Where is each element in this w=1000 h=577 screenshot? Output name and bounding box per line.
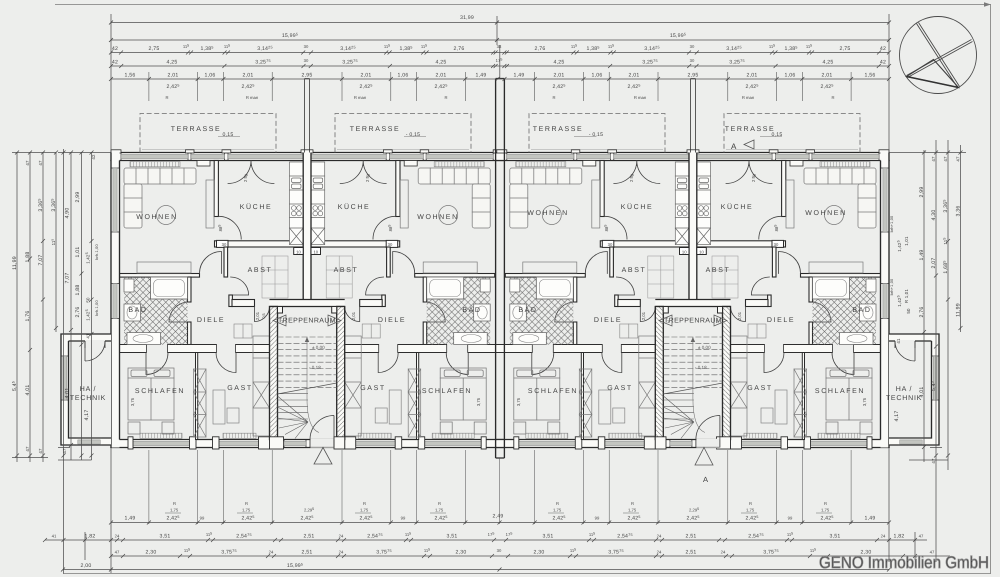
svg-text:11,99: 11,99 — [956, 303, 962, 317]
svg-text:1,75: 1,75 — [553, 508, 562, 513]
svg-text:1,75: 1,75 — [821, 508, 830, 513]
svg-text:3,51: 3,51 — [160, 534, 171, 540]
svg-text:SCHLAFEN: SCHLAFEN — [815, 388, 865, 395]
svg-text:DIELE: DIELE — [197, 317, 225, 324]
svg-text:10: 10 — [682, 249, 687, 254]
svg-text:1,49: 1,49 — [514, 73, 525, 79]
svg-text:31,99: 31,99 — [460, 15, 474, 21]
svg-text:3,36: 3,36 — [956, 206, 962, 217]
svg-text:2,07: 2,07 — [931, 258, 937, 269]
svg-text:DIELE: DIELE — [767, 317, 795, 324]
svg-text:24: 24 — [657, 534, 662, 539]
svg-text:24: 24 — [115, 534, 120, 539]
svg-text:2,01: 2,01 — [351, 311, 356, 320]
svg-text:2,49: 2,49 — [493, 514, 504, 520]
svg-text:GAST: GAST — [227, 385, 252, 392]
svg-text:1,56: 1,56 — [865, 73, 876, 79]
svg-text:GENO Immobilien GmbH: GENO Immobilien GmbH — [819, 553, 989, 572]
svg-text:47: 47 — [931, 458, 936, 464]
svg-text:1,06: 1,06 — [205, 73, 216, 79]
svg-text:4,25: 4,25 — [167, 60, 178, 66]
svg-text:15,995: 15,995 — [287, 562, 303, 569]
svg-text:30: 30 — [304, 58, 309, 63]
svg-text:KÜCHE: KÜCHE — [621, 203, 654, 211]
svg-text:24: 24 — [721, 550, 726, 555]
svg-text:2,01: 2,01 — [629, 73, 640, 79]
svg-text:24: 24 — [269, 550, 274, 555]
svg-text:2,95: 2,95 — [688, 73, 699, 79]
svg-text:2,75: 2,75 — [840, 46, 851, 52]
svg-text:BAD: BAD — [518, 307, 537, 314]
svg-text:BAD: BAD — [462, 307, 481, 314]
svg-text:brh+1,00: brh+1,00 — [890, 216, 894, 233]
svg-text:2,95: 2,95 — [302, 73, 313, 79]
svg-text:1,82: 1,82 — [894, 534, 905, 540]
svg-text:R: R — [556, 501, 559, 506]
svg-text:1,75: 1,75 — [746, 508, 755, 513]
svg-text:47: 47 — [931, 156, 936, 162]
svg-text:R: R — [749, 501, 752, 506]
svg-text:42: 42 — [91, 154, 96, 160]
svg-text:- 0,15: - 0,15 — [589, 132, 603, 138]
svg-text:41: 41 — [896, 338, 901, 344]
svg-text:2,01: 2,01 — [641, 311, 646, 320]
svg-text:R man: R man — [634, 95, 647, 100]
svg-text:1,49: 1,49 — [919, 250, 925, 261]
svg-text:99: 99 — [401, 516, 406, 521]
svg-text:KÜCHE: KÜCHE — [338, 203, 371, 211]
svg-text:2,01: 2,01 — [168, 73, 179, 79]
svg-text:2,01: 2,01 — [822, 73, 833, 79]
svg-text:2,76: 2,76 — [75, 307, 81, 318]
svg-text:47: 47 — [62, 448, 67, 454]
svg-text:1,76: 1,76 — [25, 311, 31, 322]
svg-text:1,06: 1,06 — [785, 73, 796, 79]
svg-text:24: 24 — [881, 534, 886, 539]
svg-text:R: R — [831, 95, 834, 100]
svg-text:10: 10 — [699, 249, 704, 254]
svg-text:2,76: 2,76 — [919, 307, 925, 318]
svg-text:30: 30 — [222, 242, 227, 247]
svg-text:0,15: 0,15 — [223, 132, 234, 138]
svg-text:BAD: BAD — [852, 307, 871, 314]
svg-text:3,51: 3,51 — [830, 534, 841, 540]
svg-text:R: R — [245, 501, 248, 506]
svg-text:4,25: 4,25 — [823, 60, 834, 66]
svg-text:2,75: 2,75 — [149, 46, 160, 52]
svg-text:TERRASSE: TERRASSE — [533, 126, 584, 133]
svg-text:TERRASSE: TERRASSE — [350, 126, 401, 133]
svg-text:2,51: 2,51 — [304, 534, 315, 540]
svg-text:WOHNEN: WOHNEN — [805, 210, 847, 217]
svg-text:HA /: HA / — [80, 385, 96, 393]
svg-text:R man: R man — [742, 95, 755, 100]
svg-text:99: 99 — [200, 516, 205, 521]
svg-text:GAST: GAST — [607, 385, 632, 392]
svg-text:47: 47 — [956, 156, 961, 162]
svg-text:30: 30 — [690, 44, 695, 49]
svg-text:3,75: 3,75 — [130, 397, 135, 406]
svg-text:2,01: 2,01 — [737, 311, 742, 320]
svg-text:1,01: 1,01 — [75, 247, 81, 258]
svg-text:BAD: BAD — [128, 307, 147, 314]
svg-text:4,17: 4,17 — [84, 410, 90, 421]
svg-text:1,06: 1,06 — [398, 73, 409, 79]
svg-text:1,01: 1,01 — [904, 236, 909, 246]
svg-text:2,01: 2,01 — [747, 73, 758, 79]
svg-text:R: R — [363, 501, 366, 506]
svg-text:30: 30 — [497, 548, 502, 553]
svg-text:47: 47 — [38, 448, 43, 454]
svg-text:47: 47 — [25, 446, 30, 452]
svg-text:42: 42 — [880, 46, 886, 52]
svg-text:50: 50 — [86, 297, 91, 303]
svg-text:47: 47 — [115, 550, 120, 555]
svg-text:24: 24 — [339, 534, 344, 539]
svg-text:10: 10 — [296, 249, 301, 254]
svg-text:30: 30 — [690, 58, 695, 63]
svg-text:2,30: 2,30 — [456, 550, 467, 556]
svg-text:4,25: 4,25 — [554, 60, 565, 66]
svg-text:R: R — [552, 95, 555, 100]
svg-text:7,07: 7,07 — [65, 273, 71, 284]
svg-text:2 flg: 2 flg — [365, 173, 370, 182]
svg-text:4,90: 4,90 — [65, 208, 71, 219]
svg-text:47: 47 — [943, 156, 948, 162]
svg-text:1,49: 1,49 — [125, 516, 136, 522]
svg-text:2 flg: 2 flg — [629, 173, 634, 182]
svg-text:1,49: 1,49 — [865, 516, 876, 522]
svg-text:42: 42 — [880, 60, 886, 66]
svg-text:7,07: 7,07 — [38, 255, 44, 266]
svg-text:4,17: 4,17 — [894, 411, 900, 422]
svg-text:SCHLAFEN: SCHLAFEN — [135, 388, 185, 395]
svg-text:TREPPENRAUM: TREPPENRAUM — [278, 318, 336, 325]
svg-text:KÜCHE: KÜCHE — [240, 203, 273, 211]
svg-text:SCHLAFEN: SCHLAFEN — [422, 388, 472, 395]
svg-text:A: A — [731, 142, 737, 151]
svg-text:TERRASSE: TERRASSE — [725, 126, 776, 133]
svg-text:30: 30 — [304, 44, 309, 49]
svg-text:42: 42 — [112, 46, 118, 52]
svg-text:1,49: 1,49 — [476, 73, 487, 79]
svg-text:GAST: GAST — [747, 385, 772, 392]
svg-text:11,99: 11,99 — [12, 256, 18, 270]
svg-text:TECHNIK: TECHNIK — [70, 395, 106, 402]
svg-text:2,01: 2,01 — [243, 73, 254, 79]
svg-text:TECHNIK: TECHNIK — [886, 395, 922, 402]
svg-text:1,75: 1,75 — [360, 508, 369, 513]
svg-text:brh.1,00: brh.1,00 — [95, 244, 99, 260]
svg-text:3,75: 3,75 — [516, 397, 521, 406]
svg-text:2,51: 2,51 — [686, 550, 697, 556]
svg-text:15,995: 15,995 — [670, 32, 686, 39]
svg-text:10: 10 — [313, 249, 318, 254]
svg-text:3,51: 3,51 — [447, 534, 458, 540]
svg-text:2,99: 2,99 — [919, 187, 925, 198]
svg-text:2 flg: 2 flg — [243, 173, 248, 182]
svg-text:2,30: 2,30 — [146, 550, 157, 556]
svg-text:R 1,01: R 1,01 — [904, 289, 909, 303]
svg-text:2,51: 2,51 — [302, 550, 313, 556]
svg-text:SCHLAFEN: SCHLAFEN — [528, 388, 578, 395]
svg-text:0,15: 0,15 — [772, 132, 783, 138]
svg-text:2,51: 2,51 — [686, 534, 697, 540]
svg-text:50: 50 — [906, 308, 911, 314]
svg-text:TREPPENRAUM: TREPPENRAUM — [664, 318, 722, 325]
svg-text:2,76: 2,76 — [454, 46, 465, 52]
svg-text:1,88: 1,88 — [25, 252, 31, 263]
svg-text:2,01: 2,01 — [361, 73, 372, 79]
svg-text:3,51: 3,51 — [543, 534, 554, 540]
svg-text:2,76: 2,76 — [535, 46, 546, 52]
svg-text:4,01: 4,01 — [25, 385, 31, 396]
svg-text:2,99: 2,99 — [75, 192, 81, 203]
svg-text:4,25: 4,25 — [436, 60, 447, 66]
svg-text:3,75: 3,75 — [476, 397, 481, 406]
svg-text:99: 99 — [595, 516, 600, 521]
svg-text:GAST: GAST — [360, 385, 385, 392]
svg-text:WOHNEN: WOHNEN — [417, 214, 459, 221]
svg-text:1,06: 1,06 — [592, 73, 603, 79]
svg-text:1,88: 1,88 — [75, 285, 81, 296]
svg-text:R man: R man — [354, 95, 367, 100]
svg-text:DIELE: DIELE — [594, 317, 622, 324]
svg-text:2,01: 2,01 — [554, 73, 565, 79]
svg-text:24: 24 — [657, 550, 662, 555]
svg-text:DIELE: DIELE — [378, 317, 406, 324]
svg-text:brh+1,00: brh+1,00 — [890, 279, 894, 296]
svg-text:4,30: 4,30 — [931, 210, 937, 221]
svg-text:15,995: 15,995 — [282, 32, 298, 39]
svg-text:R: R — [444, 95, 447, 100]
svg-text:R: R — [824, 501, 827, 506]
svg-text:2,01: 2,01 — [255, 311, 260, 320]
svg-text:R man: R man — [246, 95, 259, 100]
svg-text:A: A — [703, 475, 708, 484]
svg-text:47: 47 — [38, 160, 43, 166]
svg-text:R: R — [631, 501, 634, 506]
svg-text:47: 47 — [25, 160, 30, 166]
svg-text:WOHNEN: WOHNEN — [136, 214, 178, 221]
svg-text:1,82: 1,82 — [85, 534, 96, 540]
svg-text:3,75: 3,75 — [862, 397, 867, 406]
svg-text:- 0,15: - 0,15 — [406, 132, 420, 138]
svg-text:41: 41 — [86, 333, 91, 339]
svg-text:1,75: 1,75 — [170, 508, 179, 513]
svg-text:1,75: 1,75 — [435, 508, 444, 513]
svg-text:99: 99 — [788, 516, 793, 521]
svg-text:R: R — [438, 501, 441, 506]
svg-text:30: 30 — [774, 242, 779, 247]
svg-text:HA /: HA / — [896, 385, 912, 393]
svg-text:47: 47 — [919, 534, 924, 539]
svg-text:ABST: ABST — [334, 267, 359, 274]
svg-text:ABST: ABST — [622, 267, 647, 274]
svg-text:30: 30 — [388, 242, 393, 247]
svg-text:TERRASSE: TERRASSE — [171, 126, 222, 133]
svg-text:1,75: 1,75 — [628, 508, 637, 513]
svg-text:2 flg: 2 flg — [751, 173, 756, 182]
svg-text:24: 24 — [339, 550, 344, 555]
svg-text:30: 30 — [608, 242, 613, 247]
svg-text:38: 38 — [497, 44, 502, 49]
svg-text:42: 42 — [112, 60, 118, 66]
svg-text:2,00: 2,00 — [81, 563, 92, 569]
svg-text:WOHNEN: WOHNEN — [527, 210, 569, 217]
svg-text:R: R — [173, 501, 176, 506]
svg-text:KÜCHE: KÜCHE — [721, 203, 754, 211]
svg-text:brh.1,00: brh.1,00 — [95, 300, 99, 316]
svg-text:R: R — [165, 95, 168, 100]
svg-text:2,30: 2,30 — [534, 550, 545, 556]
svg-text:ABST: ABST — [248, 267, 273, 274]
svg-text:41: 41 — [52, 534, 57, 539]
svg-text:2,01: 2,01 — [436, 73, 447, 79]
svg-text:0,5: 0,5 — [262, 313, 266, 318]
svg-text:1,75: 1,75 — [242, 508, 251, 513]
svg-text:1,56: 1,56 — [125, 73, 136, 79]
svg-text:ABST: ABST — [706, 267, 731, 274]
